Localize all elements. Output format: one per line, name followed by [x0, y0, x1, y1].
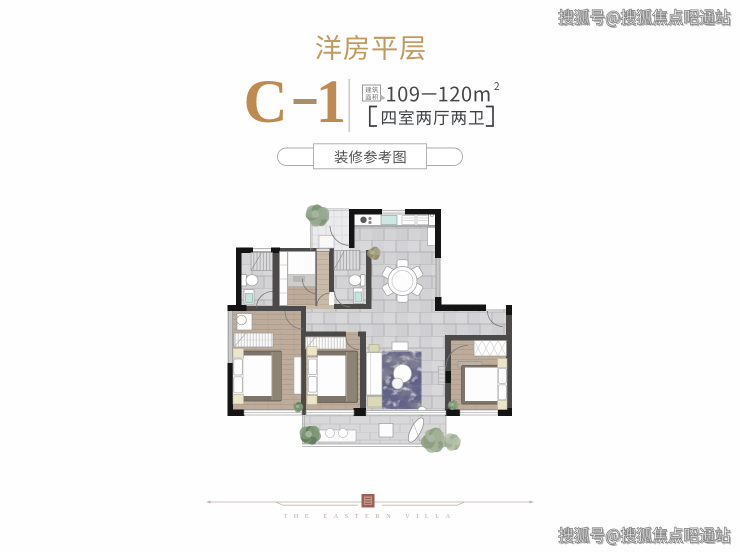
svg-text:THE EASTERN VILLA: THE EASTERN VILLA [283, 513, 456, 520]
svg-text:1: 1 [316, 69, 347, 136]
svg-text:C: C [244, 69, 288, 136]
